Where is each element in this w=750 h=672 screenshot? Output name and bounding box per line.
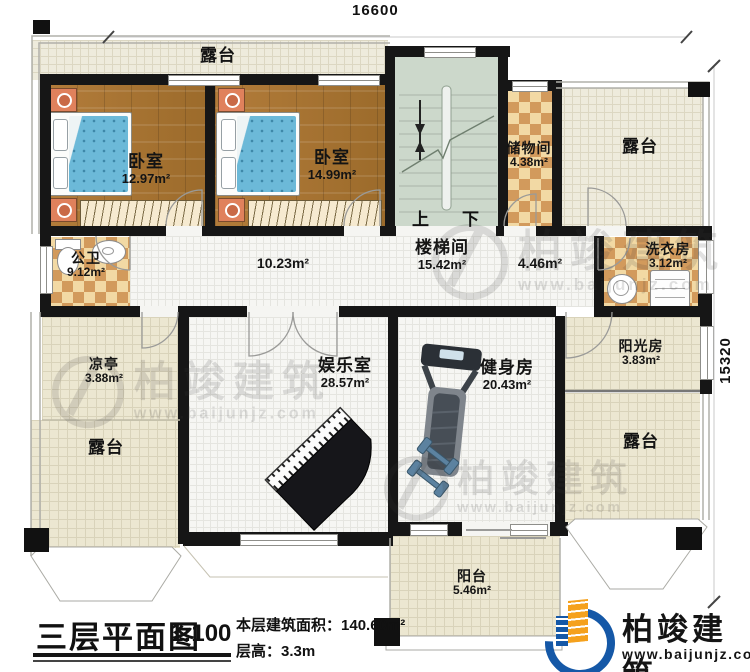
floor-plan: 露台 卧室 12.97m² 卧室 14.99m² 储物间 4.38m² 露台 公… [0,0,750,672]
label-stairs-up: 上 [412,205,429,230]
label-passage-area: 4.46m² [518,255,562,271]
nightstand [218,198,245,222]
window [40,246,53,294]
window [168,75,240,86]
wall [555,316,565,528]
room-terrace-right [565,393,700,523]
dimension-right: 15320 [717,337,734,384]
double-door-opening [247,306,339,317]
window [700,326,714,380]
dimension-top: 16600 [352,2,399,19]
bay-window-left [31,547,181,601]
wall [594,232,604,312]
logo-building-orange-icon [568,599,588,643]
floor-area-text: 本层建筑面积：140.60m² [236,614,405,635]
pillow [221,119,236,151]
mattress [69,116,128,192]
label-gym: 健身房 20.43m² [480,358,534,392]
window [512,81,548,92]
pillar [33,20,50,34]
logo-building-blue-icon [556,616,568,646]
room-entertainment [189,317,388,533]
pillar [688,82,710,97]
floor-height-text: 层高：3.3m [236,640,315,661]
lamp-icon [225,203,240,218]
pillow [221,157,236,189]
door-opening [140,306,178,317]
label-balcony: 阳台 5.46m² [453,568,491,597]
label-pavilion: 凉亭 3.88m² [85,356,123,385]
eave-line [184,546,388,577]
lamp-icon [57,93,72,108]
wall [552,80,562,226]
room-stairwell [395,57,498,227]
window [318,75,380,86]
label-terrace-top: 露台 [200,46,236,66]
window [410,524,448,536]
title-underline-thin [33,660,231,662]
label-terrace-right: 露台 [623,432,659,452]
label-terrace-top-right: 露台 [622,137,658,157]
bed [48,112,132,196]
wall [205,80,215,226]
label-entertainment: 娱乐室 28.57m² [318,356,372,390]
stair-opening [396,226,496,236]
label-corridor-area: 10.23m² [257,255,309,271]
label-stairwell: 楼梯间 15.42m² [415,238,469,272]
wall [594,306,712,317]
plan-scale: 1:100 [170,620,231,648]
room-gym [398,317,555,523]
label-stairs-down: 下 [462,205,479,230]
door-opening [344,226,380,236]
wall [178,316,189,544]
label-laundry: 洗衣房 3.12m² [646,241,691,270]
wardrobe [248,200,382,228]
logo-url: www.baijunjz.com [622,646,750,662]
label-bedroom-left: 卧室 12.97m² [122,152,170,186]
window [424,47,476,58]
nightstand [50,88,77,112]
bed [216,112,300,196]
pillar [676,527,702,550]
mattress [237,116,296,192]
nightstand [218,88,245,112]
label-bath: 公卫 9.12m² [67,250,105,279]
wall [388,316,398,532]
window [698,240,714,294]
pillow [53,119,68,151]
balcony-railing [386,636,562,650]
room-terrace-top-right [556,88,703,227]
room-corridor [130,236,594,307]
label-sunroom: 阳光房 3.83m² [619,338,664,367]
wash-basin [607,274,637,304]
wall [388,306,556,317]
wardrobe [80,200,204,228]
window [240,534,338,546]
nightstand [50,198,77,222]
pillow [53,157,68,189]
label-storage: 储物间 4.38m² [507,140,552,169]
door-opening [166,226,202,236]
door-opening [586,226,626,236]
label-bedroom-right: 卧室 14.99m² [308,148,356,182]
label-terrace-left: 露台 [88,438,124,458]
wall [385,46,395,236]
basin-drain-icon [613,280,629,296]
door-opening [504,226,536,236]
window [510,524,548,536]
washing-machine [650,270,690,310]
lamp-icon [225,93,240,108]
title-underline [33,653,231,657]
lamp-icon [57,203,72,218]
pillar [24,528,49,552]
